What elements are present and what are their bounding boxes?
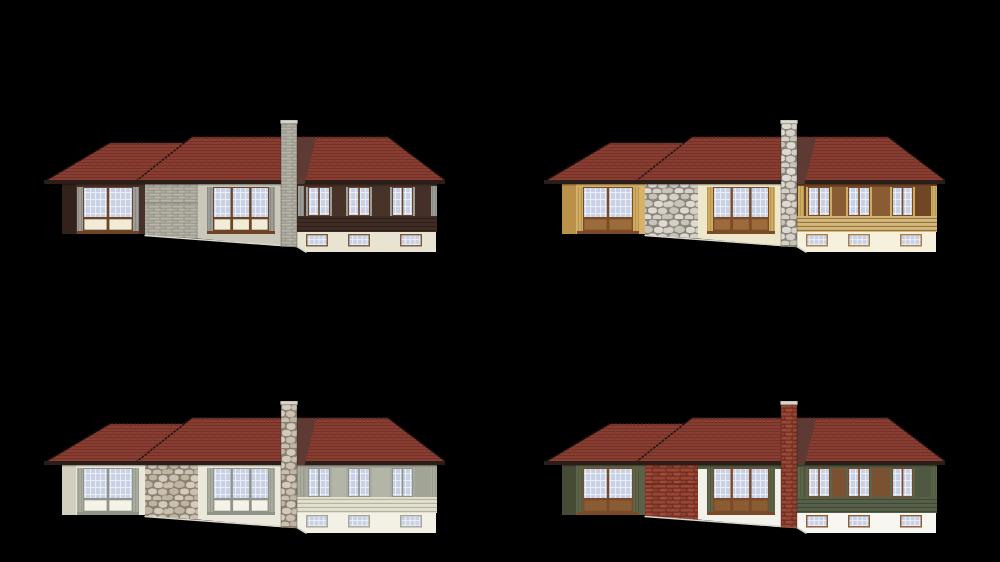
window-mullion: [607, 188, 609, 217]
mid-window: [207, 468, 275, 515]
window-side-trim: [577, 468, 583, 515]
clerestory-window: [346, 468, 372, 497]
chimney-cap: [280, 120, 297, 124]
chimney-cap: [780, 120, 797, 124]
basement-window: [900, 515, 922, 528]
window-sill-rail: [207, 231, 275, 234]
window-sill-rail: [577, 512, 639, 515]
chimney-cap: [780, 401, 797, 405]
window-glass: [349, 516, 368, 526]
window-glass: [307, 516, 326, 526]
window-side-trim: [77, 468, 83, 515]
spandrel-panel: [233, 500, 249, 510]
chimney: [781, 124, 797, 247]
clerestory-window: [890, 468, 915, 497]
clerestory-window: [390, 468, 415, 497]
left-wing-window: [77, 468, 139, 515]
window-side-trim: [707, 187, 713, 234]
spandrel-panel: [752, 219, 768, 229]
spandrel-panel: [252, 219, 268, 229]
spandrel-panel: [584, 500, 606, 510]
window-side-trim: [769, 187, 775, 234]
elevation-canvas: [0, 0, 1000, 562]
fascia: [44, 461, 445, 465]
wall-panel: [332, 468, 346, 497]
spandrel-panel: [109, 500, 131, 510]
window-mullion: [107, 188, 109, 217]
window-mullion: [249, 469, 251, 498]
spandrel-panel: [214, 219, 230, 229]
window-glass: [901, 235, 920, 245]
window-side-trim: [77, 187, 83, 234]
window-glass: [401, 235, 420, 245]
corner-trim: [298, 467, 304, 497]
eave-shadow: [562, 184, 937, 185]
clerestory-window: [306, 187, 332, 216]
basement-window: [400, 234, 422, 247]
window-side-trim: [633, 468, 639, 515]
window-mullion: [749, 188, 751, 217]
spandrel-panel: [584, 219, 606, 229]
eave-shadow: [62, 465, 437, 466]
spandrel-panel: [714, 500, 730, 510]
window-side-trim: [707, 468, 713, 515]
eave-shadow: [62, 184, 437, 185]
masonry-wall: [145, 184, 198, 239]
window-sill-rail: [707, 231, 775, 234]
window-glass: [349, 235, 368, 245]
wall-panel: [832, 187, 846, 216]
chimney-cap: [280, 401, 297, 405]
basement-window: [848, 515, 870, 528]
window-sill-rail: [77, 231, 139, 234]
window-mullion: [607, 469, 609, 498]
spandrel-panel: [214, 500, 230, 510]
masonry-wall: [645, 465, 698, 520]
basement-window: [806, 234, 828, 247]
spandrel-panel: [609, 500, 631, 510]
basement-window: [306, 234, 328, 247]
fascia: [44, 180, 445, 184]
wall-panel: [832, 468, 846, 497]
corner-trim: [798, 186, 804, 216]
spandrel-panel: [609, 219, 631, 229]
window-side-trim: [269, 468, 275, 515]
window-side-trim: [133, 187, 139, 234]
spandrel-panel: [233, 219, 249, 229]
basement-window: [806, 515, 828, 528]
window-glass: [849, 516, 868, 526]
wall-panel: [872, 468, 890, 497]
spandrel-panel: [714, 219, 730, 229]
window-sill-rail: [707, 512, 775, 515]
mid-window: [707, 187, 775, 234]
window-mullion: [730, 188, 732, 217]
clerestory-window: [806, 187, 832, 216]
basement-window: [348, 515, 370, 528]
window-sill-rail: [577, 231, 639, 234]
window-glass: [401, 516, 420, 526]
basement-window: [900, 234, 922, 247]
window-side-trim: [577, 187, 583, 234]
window-mullion: [107, 469, 109, 498]
window-glass: [214, 188, 268, 217]
left-corner-shadow: [562, 465, 576, 515]
wall-panel: [372, 187, 390, 216]
window-side-trim: [269, 187, 275, 234]
clerestory-window: [346, 187, 372, 216]
left-wing-window: [577, 187, 639, 234]
basement-window: [848, 234, 870, 247]
left-corner-shadow: [62, 184, 76, 234]
siding-band: [797, 216, 937, 232]
window-glass: [901, 516, 920, 526]
window-glass: [807, 516, 826, 526]
spandrel-panel: [733, 219, 749, 229]
spandrel-panel: [752, 500, 768, 510]
siding-band: [297, 497, 437, 513]
clerestory-window: [846, 187, 872, 216]
clerestory-window: [806, 468, 832, 497]
spandrel-panel: [84, 500, 106, 510]
clerestory-window: [390, 187, 415, 216]
wall-panel: [372, 468, 390, 497]
window-glass: [214, 469, 268, 498]
basement-window: [348, 234, 370, 247]
basement-window: [306, 515, 328, 528]
siding-band: [297, 216, 437, 232]
window-mullion: [230, 469, 232, 498]
window-glass: [849, 235, 868, 245]
left-corner-shadow: [562, 184, 576, 234]
window-mullion: [730, 469, 732, 498]
clerestory-window: [890, 187, 915, 216]
corner-trim: [298, 186, 304, 216]
clerestory-window: [306, 468, 332, 497]
chimney: [281, 405, 297, 528]
mid-window: [707, 468, 775, 515]
corner-trim: [798, 467, 804, 497]
basement-window: [400, 515, 422, 528]
eave-shadow: [562, 465, 937, 466]
left-corner-shadow: [62, 465, 76, 515]
window-glass: [714, 188, 768, 217]
masonry-wall: [645, 184, 698, 239]
left-wing-window: [77, 187, 139, 234]
siding-band: [797, 497, 937, 513]
window-mullion: [249, 188, 251, 217]
elevation-sheet: [0, 0, 1000, 562]
spandrel-panel: [252, 500, 268, 510]
spandrel-panel: [109, 219, 131, 229]
window-mullion: [749, 469, 751, 498]
window-side-trim: [633, 187, 639, 234]
clerestory-window: [846, 468, 872, 497]
window-glass: [714, 469, 768, 498]
fascia: [544, 461, 945, 465]
wall-panel: [332, 187, 346, 216]
wall-panel: [872, 187, 890, 216]
fascia: [544, 180, 945, 184]
window-side-trim: [769, 468, 775, 515]
chimney: [781, 405, 797, 528]
chimney: [281, 124, 297, 247]
left-wing-window: [577, 468, 639, 515]
window-glass: [807, 235, 826, 245]
masonry-wall: [145, 465, 198, 520]
window-side-trim: [133, 468, 139, 515]
spandrel-panel: [84, 219, 106, 229]
window-side-trim: [207, 187, 213, 234]
spandrel-panel: [733, 500, 749, 510]
window-sill-rail: [207, 512, 275, 515]
window-glass: [307, 235, 326, 245]
window-side-trim: [207, 468, 213, 515]
mid-window: [207, 187, 275, 234]
window-sill-rail: [77, 512, 139, 515]
window-mullion: [230, 188, 232, 217]
